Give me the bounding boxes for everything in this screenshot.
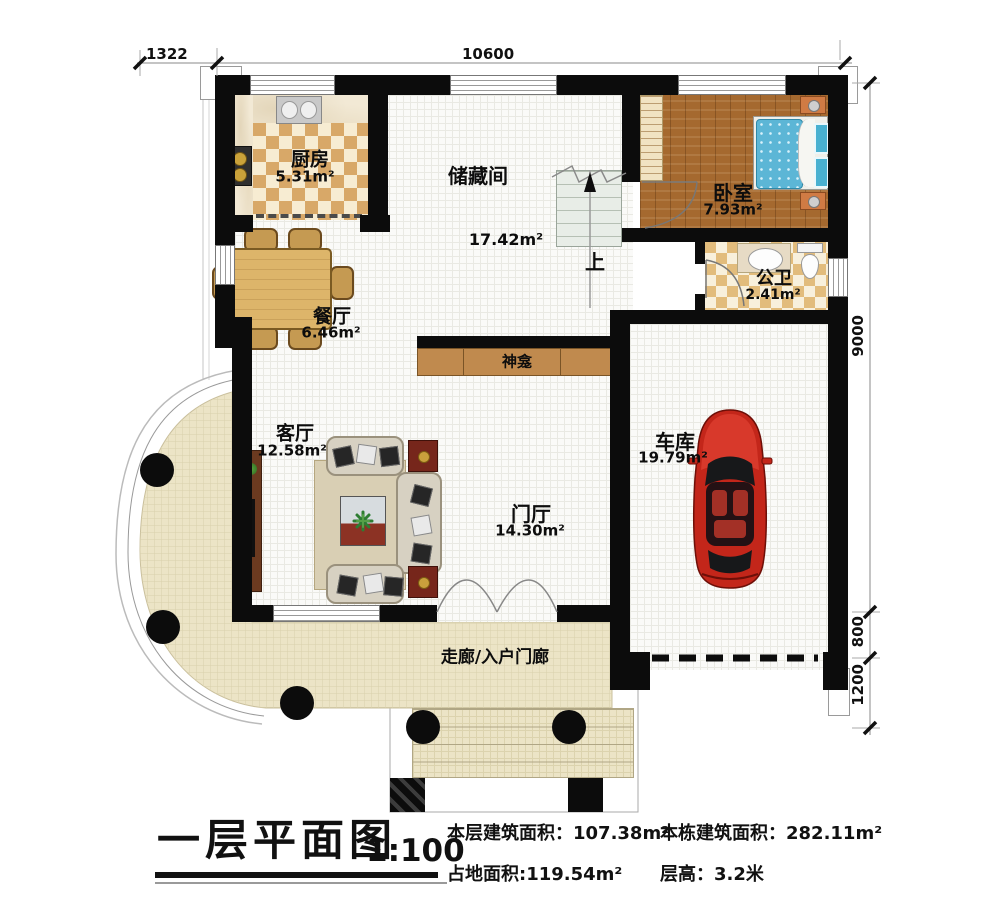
plant-illustration	[354, 512, 372, 530]
car-illustration	[688, 410, 772, 588]
title-underline	[155, 872, 438, 878]
label-dining-area: 6.46m²	[301, 326, 360, 341]
label-bathroom-area: 2.41m²	[745, 288, 800, 302]
label-storage: 储藏间	[448, 166, 508, 186]
page-title: 一层平面图	[157, 820, 397, 863]
label-storage-area: 17.42m²	[469, 232, 543, 248]
title-underline-thin	[155, 882, 447, 884]
stairs-up-arrow	[584, 172, 596, 192]
stat-floor-height: 层高：3.2米	[660, 866, 764, 884]
bedroom-door-arc	[645, 182, 697, 228]
dimension-ticks	[134, 57, 876, 734]
stat-building-area: 本栋建筑面积：282.11m²	[660, 825, 882, 843]
label-bedroom-area: 7.93m²	[703, 203, 762, 218]
porch-column	[552, 710, 586, 744]
dim-1322: 1322	[146, 45, 188, 63]
dim-9000: 9000	[849, 315, 867, 357]
porch-column	[146, 610, 180, 644]
label-foyer-area: 14.30m²	[495, 524, 565, 539]
porch-column	[406, 710, 440, 744]
label-kitchen-area: 5.31m²	[275, 170, 334, 185]
label-shrine: 神龛	[502, 355, 532, 370]
dim-1200: 1200	[849, 664, 867, 706]
label-stairs-up: 上	[585, 252, 605, 272]
label-porch: 走廊/入户门廊	[441, 650, 549, 667]
stat-floor-area: 本层建筑面积：107.38m²	[447, 825, 669, 843]
entrance-door-right-arc	[497, 580, 557, 612]
entrance-pillar	[568, 778, 603, 812]
label-garage-area: 19.79m²	[638, 451, 708, 466]
floor-plan: 厨房 5.31m² 储藏间 17.42m² 卧室 7.93m² 公卫 2.41m…	[0, 0, 1000, 914]
label-living-area: 12.58m²	[257, 444, 327, 459]
dim-10600: 10600	[462, 45, 514, 63]
bathroom-door-arc	[706, 260, 744, 306]
porch-column	[280, 686, 314, 720]
dim-800: 800	[849, 616, 867, 647]
porch-column	[140, 453, 174, 487]
stat-land-area: 占地面积:119.54m²	[447, 866, 622, 884]
entrance-door-left-arc	[437, 580, 497, 612]
label-bathroom: 公卫	[756, 270, 792, 288]
entrance-pillar	[390, 778, 425, 812]
